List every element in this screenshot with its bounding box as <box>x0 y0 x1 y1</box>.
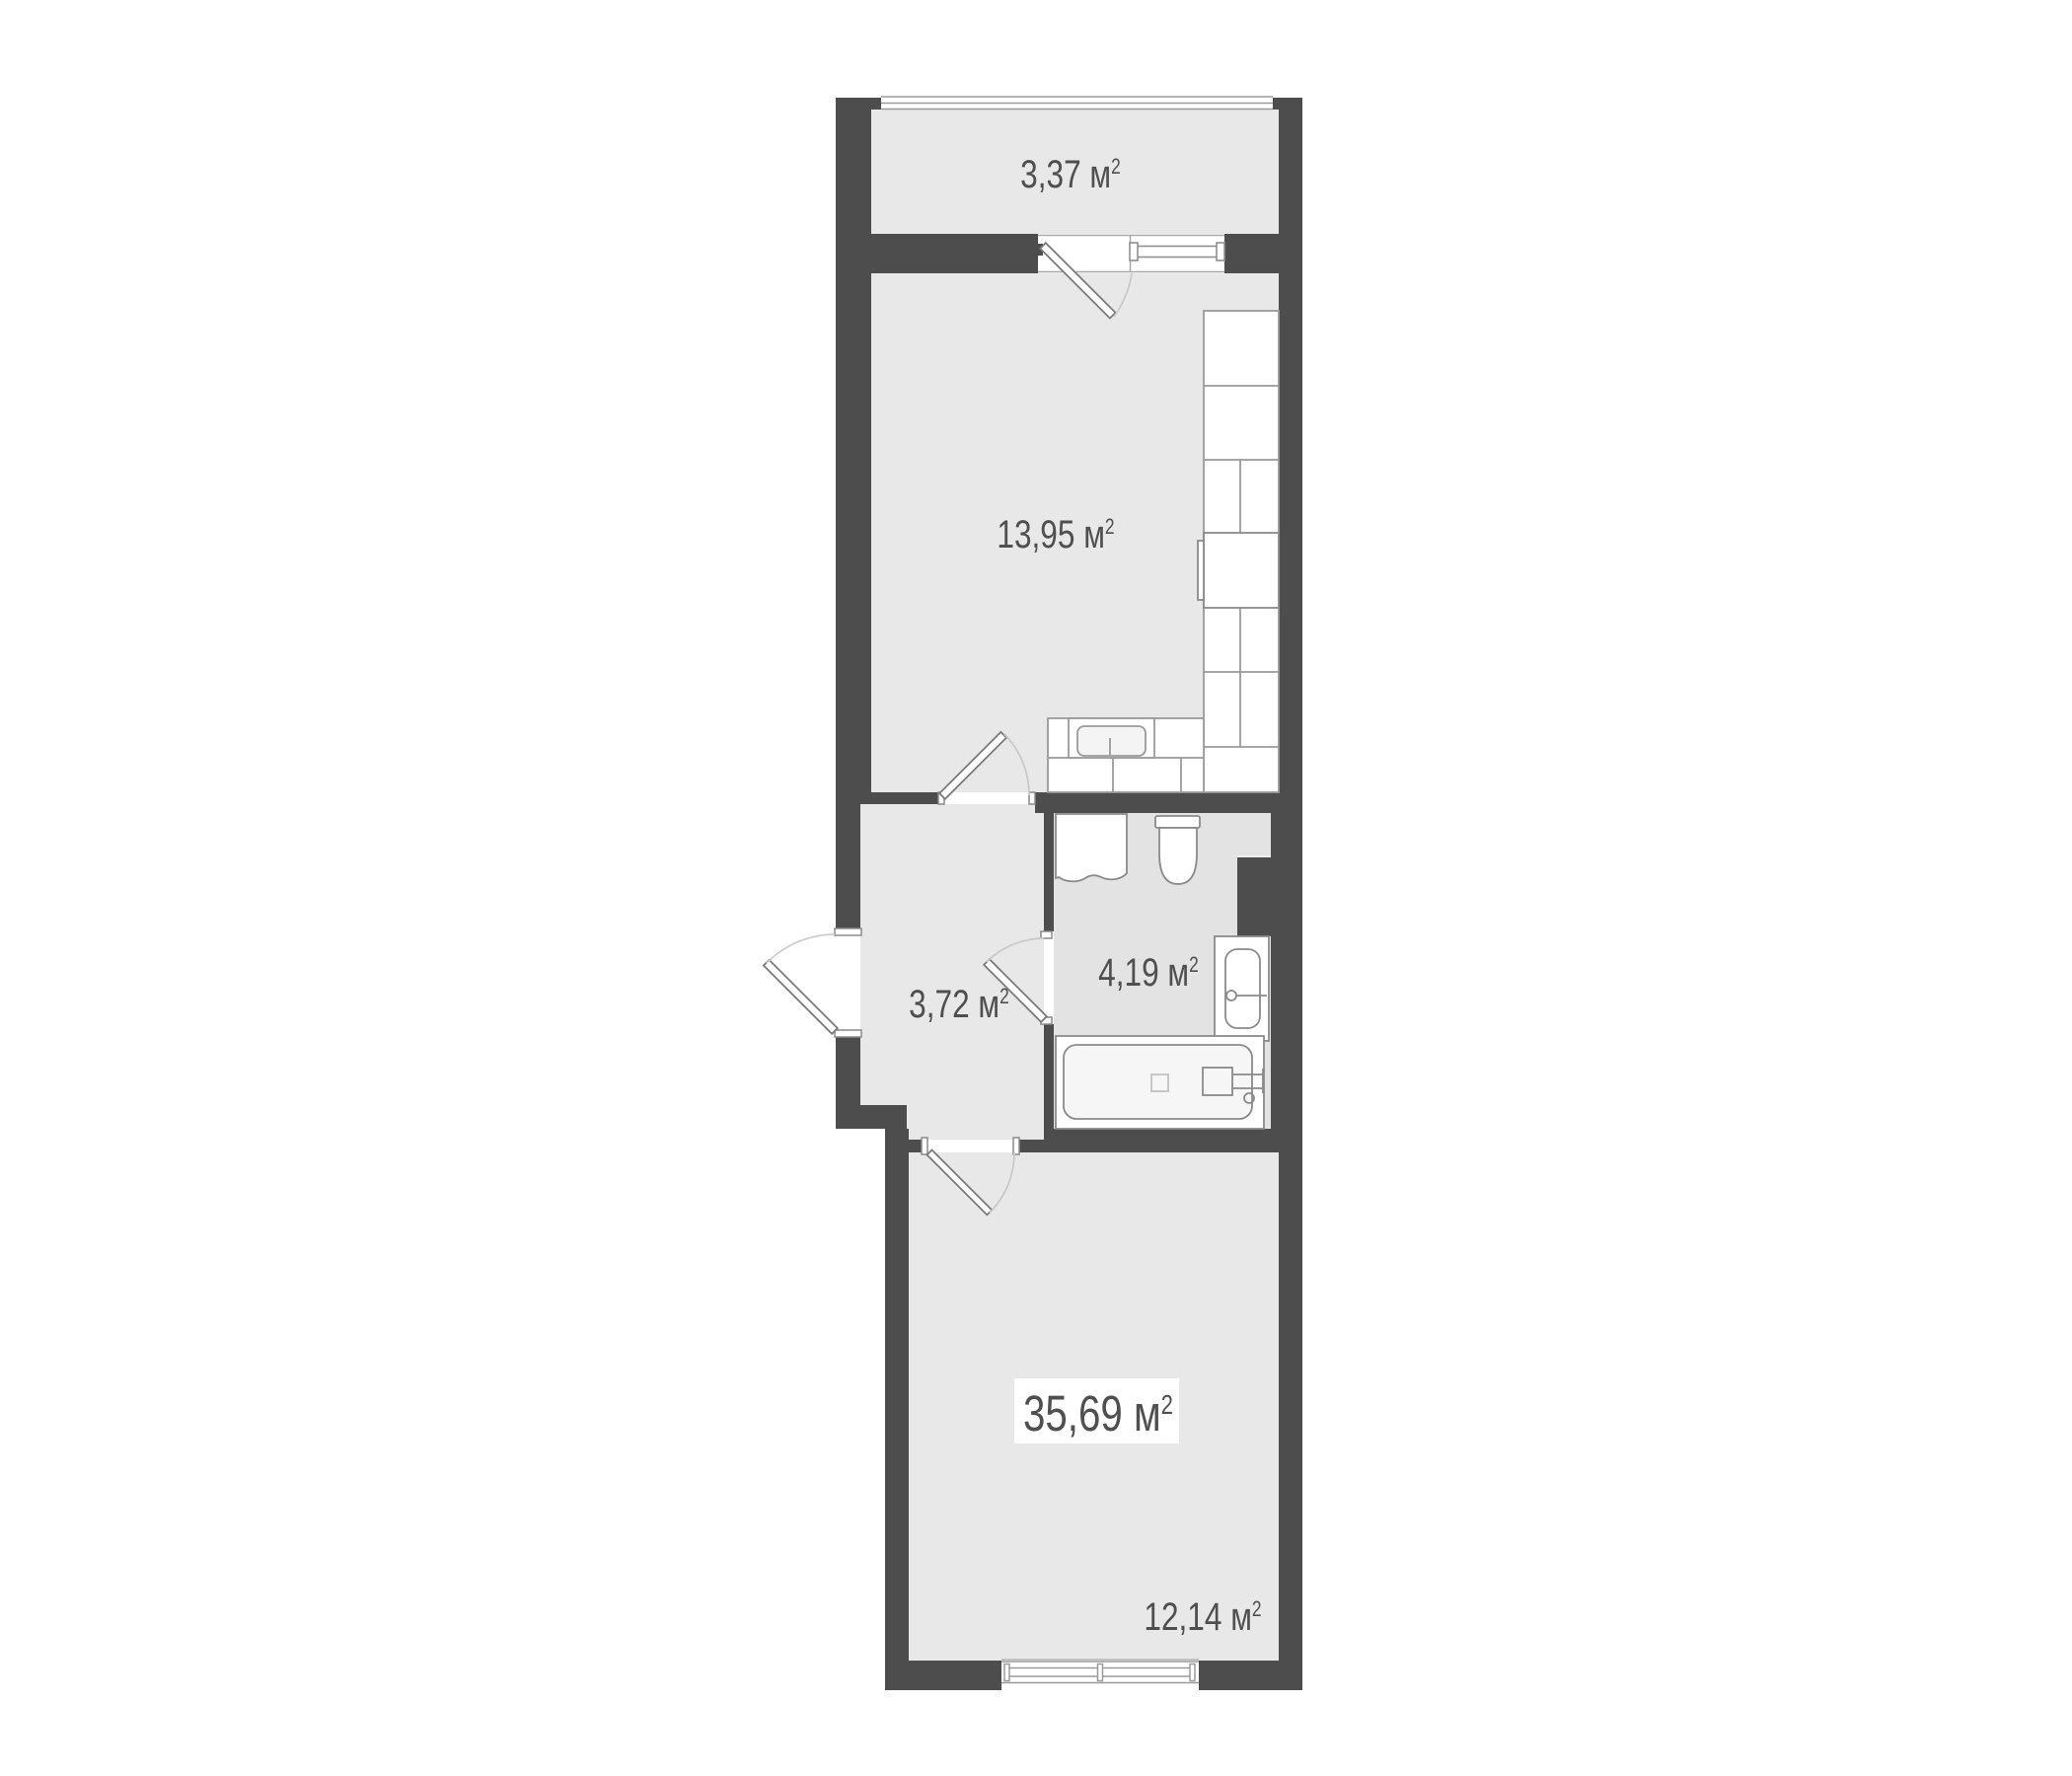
svg-text:12,14 м2: 12,14 м2 <box>1144 1593 1261 1638</box>
svg-text:3,37 м2: 3,37 м2 <box>1020 151 1121 195</box>
svg-text:3,72 м2: 3,72 м2 <box>909 981 1009 1025</box>
svg-text:13,95 м2: 13,95 м2 <box>997 511 1114 555</box>
svg-text:4,19 м2: 4,19 м2 <box>1098 949 1199 994</box>
svg-text:35,69 м2: 35,69 м2 <box>1023 1384 1173 1442</box>
